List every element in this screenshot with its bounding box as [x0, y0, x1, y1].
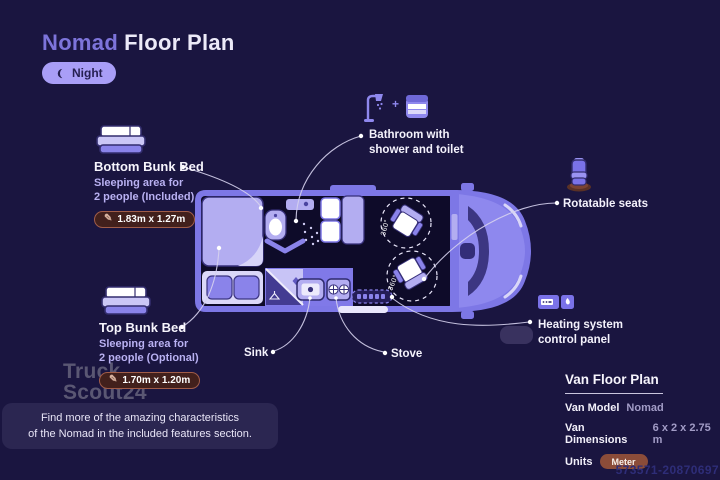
bunk-bed-icon — [99, 286, 153, 316]
stove-unit — [327, 279, 350, 300]
callout-bathroom: + Bathroom with shower and toilet — [364, 92, 464, 158]
plus-icon: + — [392, 97, 399, 111]
van-model-label: Van Model — [565, 402, 619, 414]
callout-rotatable-seats: Rotatable seats — [566, 158, 648, 212]
top-bunk-dimensions-badge: ✎ 1.70m x 1.20m — [99, 372, 200, 389]
bottom-bunk-desc-line1: Sleeping area for — [94, 176, 204, 190]
rotatable-seats-label: Rotatable seats — [563, 197, 648, 212]
footer-note: Find more of the amazing characteristics… — [2, 403, 278, 449]
shower-icon — [364, 92, 386, 122]
van-model-row: Van Model Nomad — [565, 402, 720, 414]
sink-label: Sink — [244, 346, 268, 361]
van-info-panel: Van Floor Plan Van Model Nomad Van Dimen… — [565, 371, 720, 469]
callout-bottom-bunk: Bottom Bunk Bed Sleeping area for 2 peop… — [94, 125, 204, 228]
van-bulkhead — [450, 192, 459, 310]
bottom-bunk-dimensions: 1.83m x 1.27m — [117, 214, 185, 225]
stove-label: Stove — [391, 347, 422, 362]
page-title-suffix: Floor Plan — [124, 30, 235, 55]
van-dimensions-label: Van Dimensions — [565, 422, 646, 446]
top-bunk-desc-line2: 2 people (Optional) — [99, 351, 200, 365]
top-bunk-desc-line1: Sleeping area for — [99, 337, 200, 351]
footer-note-line2: of the Nomad in the included features se… — [28, 426, 252, 443]
footer-note-line1: Find more of the amazing characteristics — [41, 410, 239, 427]
callout-top-bunk: Top Bunk Bed Sleeping area for 2 people … — [99, 286, 200, 389]
units-label: Units — [565, 456, 593, 468]
night-mode-toggle[interactable]: Night — [42, 62, 116, 84]
heating-panel-icon — [538, 295, 574, 309]
bathroom-label-line2: shower and toilet — [369, 143, 464, 158]
ruler-icon: ✎ — [104, 214, 112, 224]
van-model-value: Nomad — [626, 402, 663, 414]
van-info-title: Van Floor Plan — [565, 372, 663, 394]
moon-icon — [55, 68, 66, 79]
bottom-bunk-dimensions-badge: ✎ 1.83m x 1.27m — [94, 211, 195, 228]
bottom-bunk-desc-line2: 2 people (Included) — [94, 190, 204, 204]
page-title-brand: Nomad — [42, 30, 118, 55]
top-bunk-title: Top Bunk Bed — [99, 320, 200, 335]
ruler-icon: ✎ — [109, 375, 117, 385]
seat-icon — [566, 158, 592, 192]
toilet-icon — [405, 94, 429, 120]
van-dimensions-row: Van Dimensions 6 x 2 x 2.75 m — [565, 422, 720, 446]
night-mode-label: Night — [72, 66, 103, 80]
callout-heating: Heating system control panel — [538, 295, 623, 348]
heater-unit — [352, 290, 392, 303]
listing-id: 573571-20870697 — [616, 463, 719, 477]
entry-step — [338, 306, 388, 313]
page-title: NomadFloor Plan — [42, 30, 235, 56]
van-dimensions-value: 6 x 2 x 2.75 m — [653, 422, 720, 446]
page: Truck Scout24 — [0, 0, 720, 480]
bottom-bunk-title: Bottom Bunk Bed — [94, 159, 204, 174]
heating-label-line2: control panel — [538, 333, 623, 348]
bunk-bed-icon — [94, 125, 148, 155]
top-bunk-dimensions: 1.70m x 1.20m — [122, 375, 190, 386]
heating-label-line1: Heating system — [538, 318, 623, 333]
bathroom-label-line1: Bathroom with — [369, 128, 464, 143]
